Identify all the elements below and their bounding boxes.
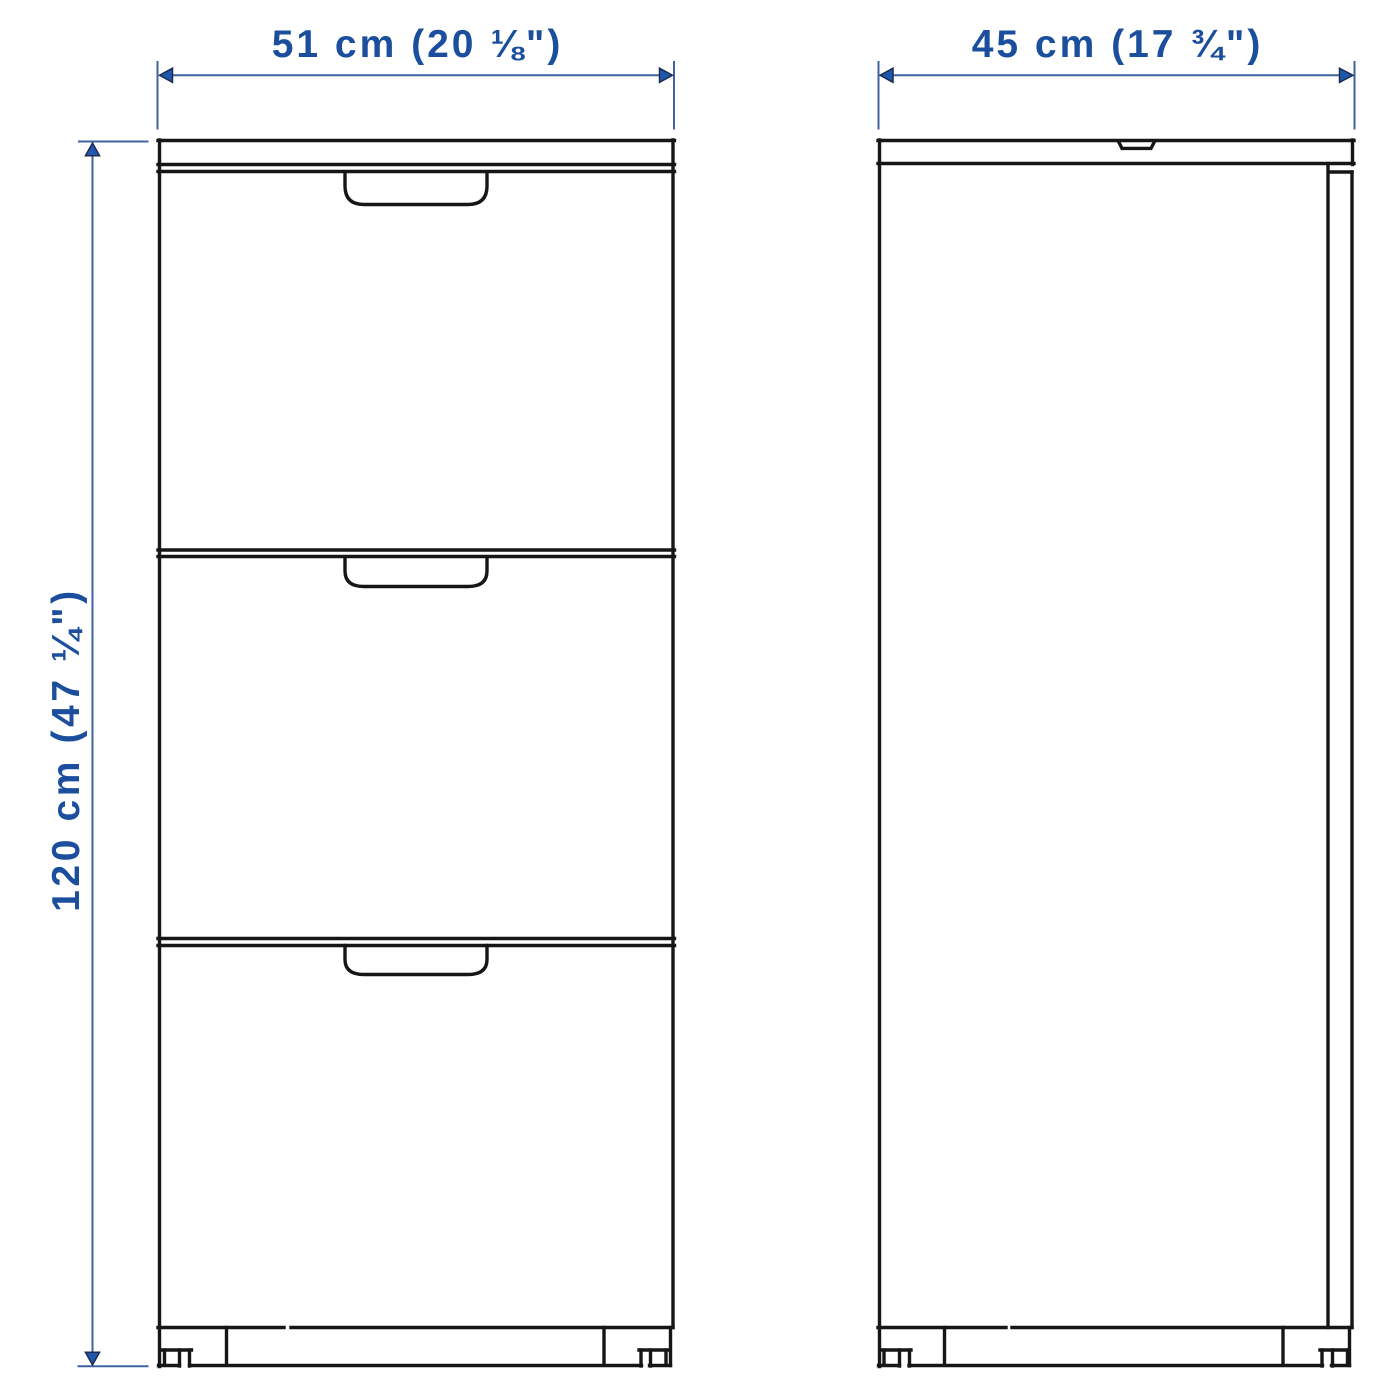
svg-text:120 cm (47 ¼"): 120 cm (47 ¼")	[45, 587, 88, 912]
svg-text:45 cm (17 ¾"): 45 cm (17 ¾")	[972, 23, 1264, 66]
svg-text:51 cm (20 ⅛"): 51 cm (20 ⅛")	[272, 23, 564, 66]
